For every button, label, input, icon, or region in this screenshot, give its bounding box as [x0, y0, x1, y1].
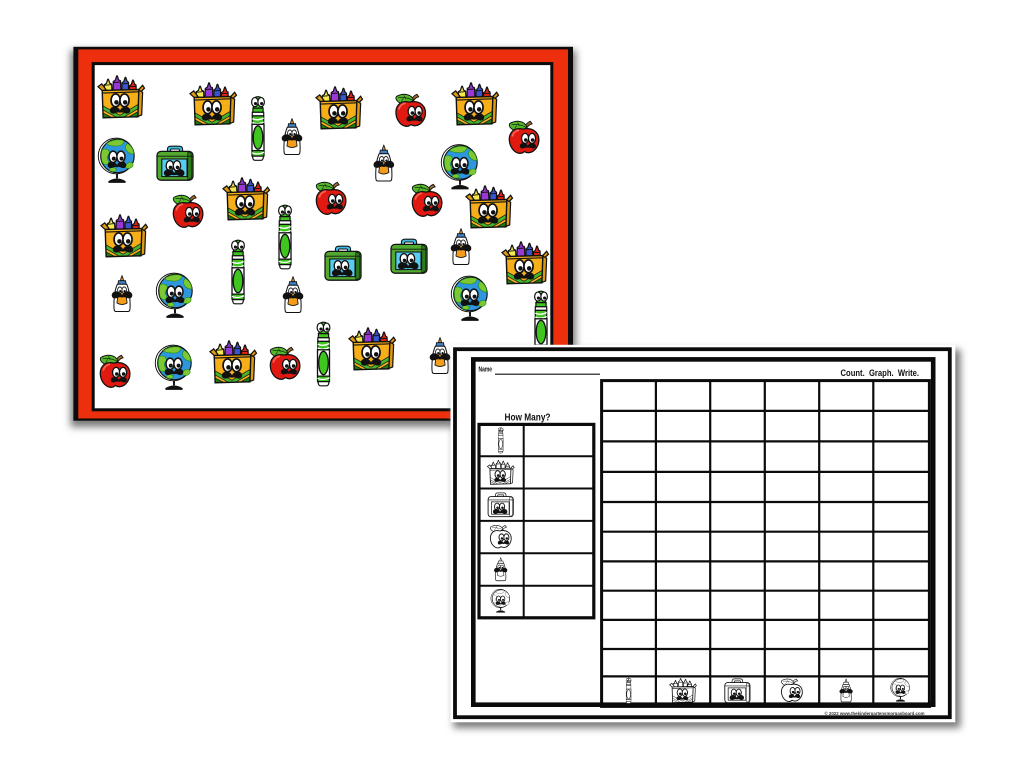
svg-text:How Many?: How Many? — [505, 412, 551, 423]
svg-text:Name: Name — [479, 366, 493, 373]
svg-text:© 2022 www.thekindergartensmor: © 2022 www.thekindergartensmorgasboard.c… — [825, 710, 926, 717]
svg-text:Count. Graph. Write.: Count. Graph. Write. — [841, 368, 920, 378]
